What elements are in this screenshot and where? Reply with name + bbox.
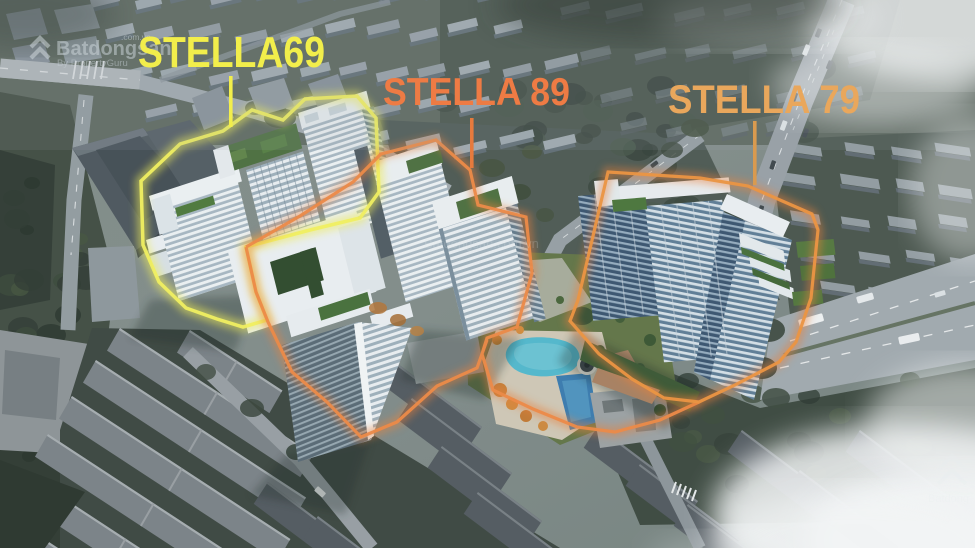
svg-text:STELLA 89: STELLA 89 [383, 71, 570, 114]
svg-text:By PropertyGuru: By PropertyGuru [57, 58, 128, 69]
svg-text:STELLA 79: STELLA 79 [668, 78, 860, 122]
svg-text:STELLA69: STELLA69 [138, 28, 325, 77]
svg-text:Batdongsan.com.vn: Batdongsan.com.vn [424, 236, 539, 251]
svg-text:Batdong: Batdong [928, 493, 969, 505]
